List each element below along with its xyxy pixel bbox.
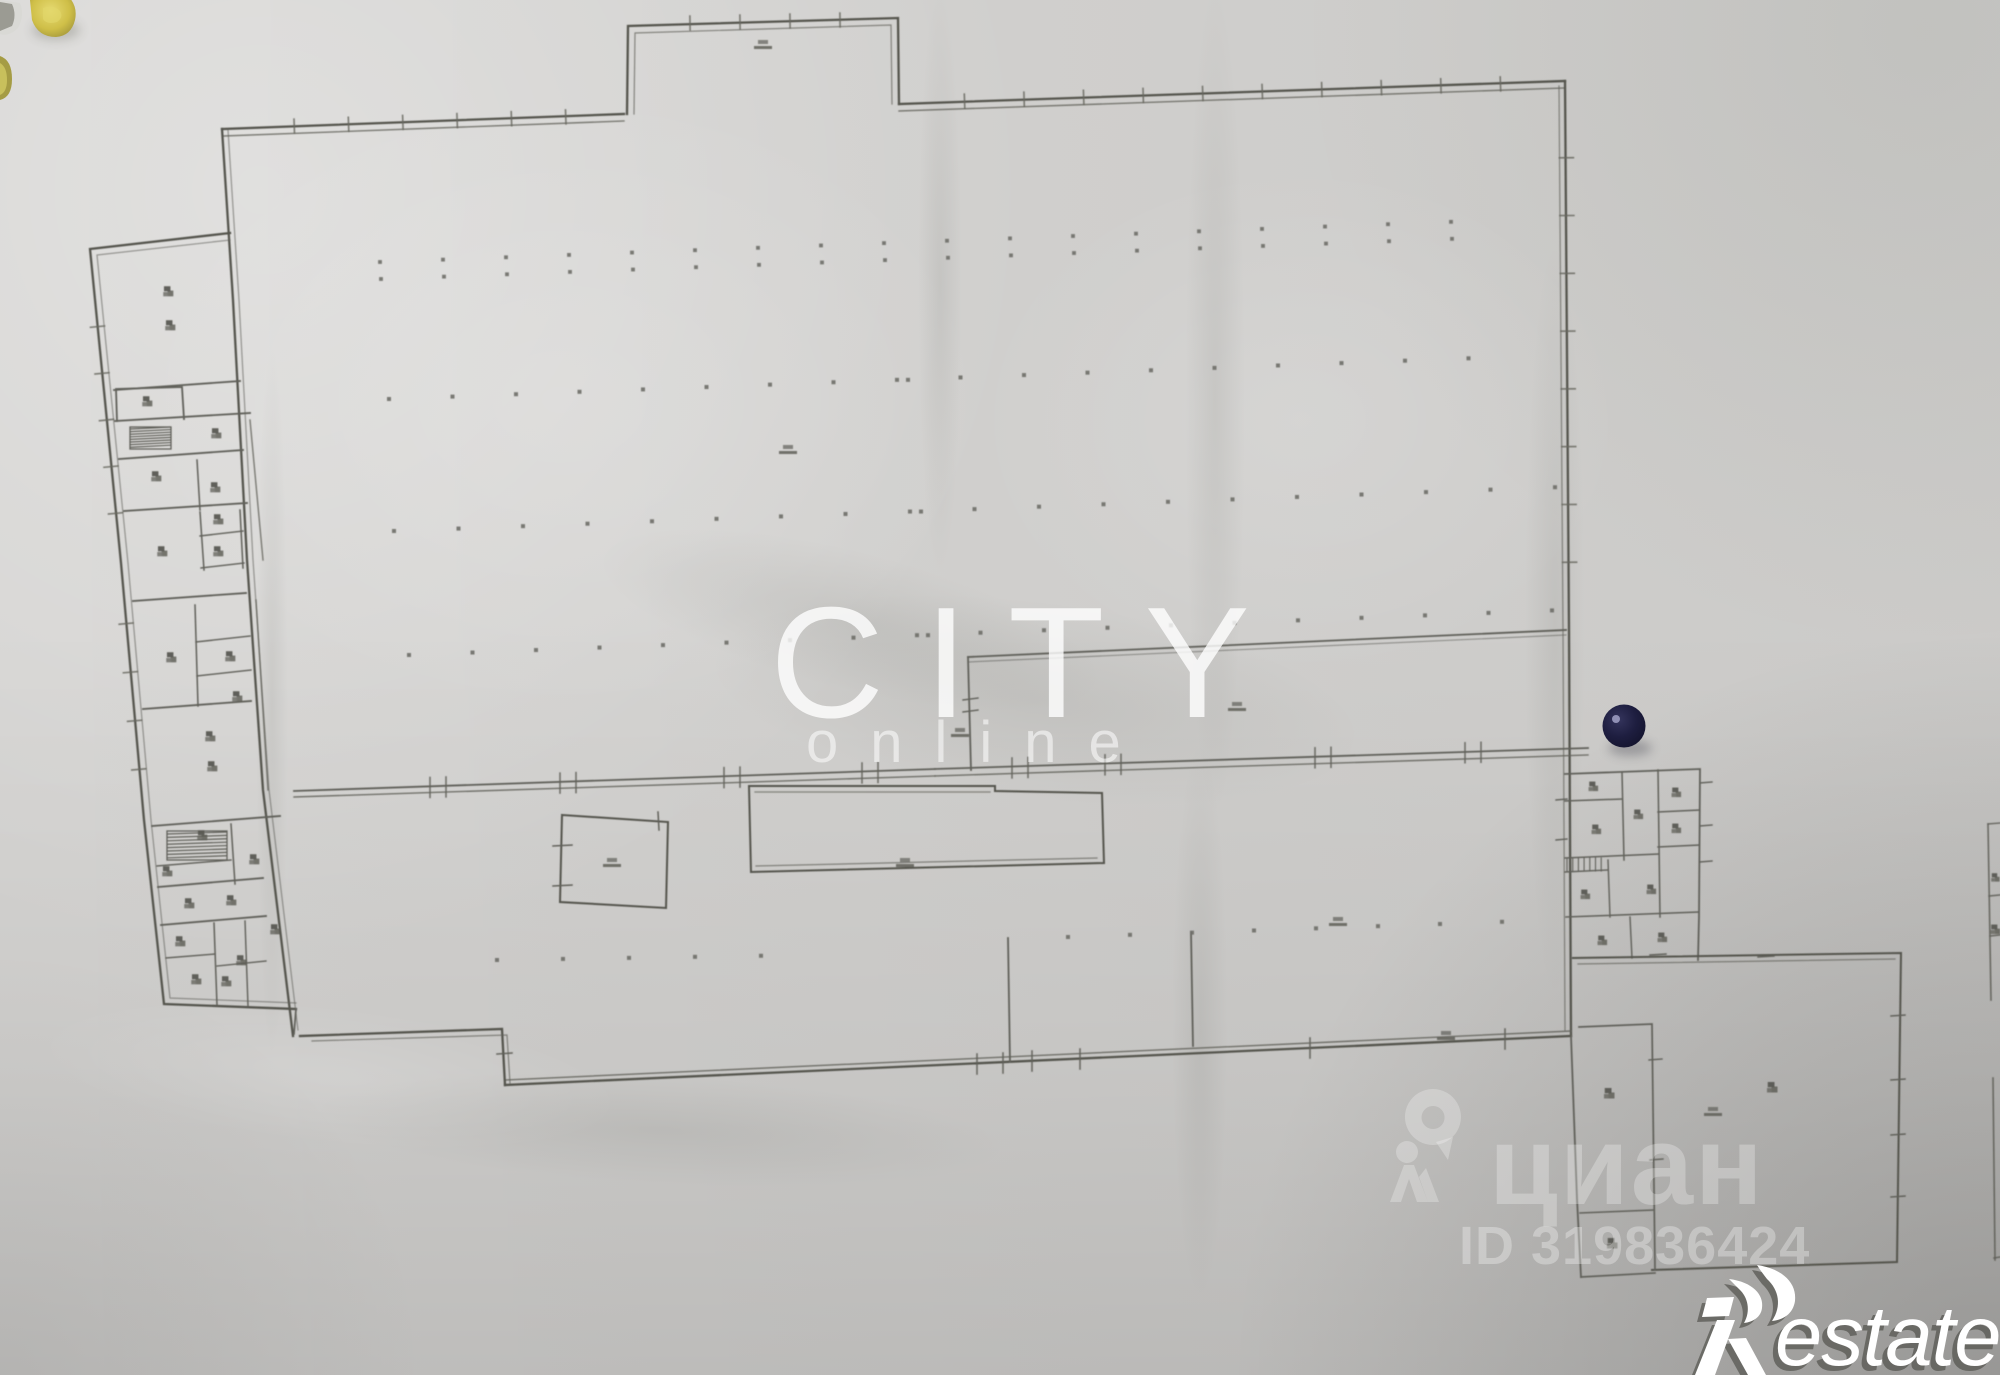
- svg-text:циан: циан: [1489, 1103, 1765, 1228]
- svg-text:online: online: [806, 710, 1153, 775]
- svg-text:estate: estate: [1775, 1289, 2000, 1375]
- svg-text:ID 319836424: ID 319836424: [1459, 1216, 1810, 1276]
